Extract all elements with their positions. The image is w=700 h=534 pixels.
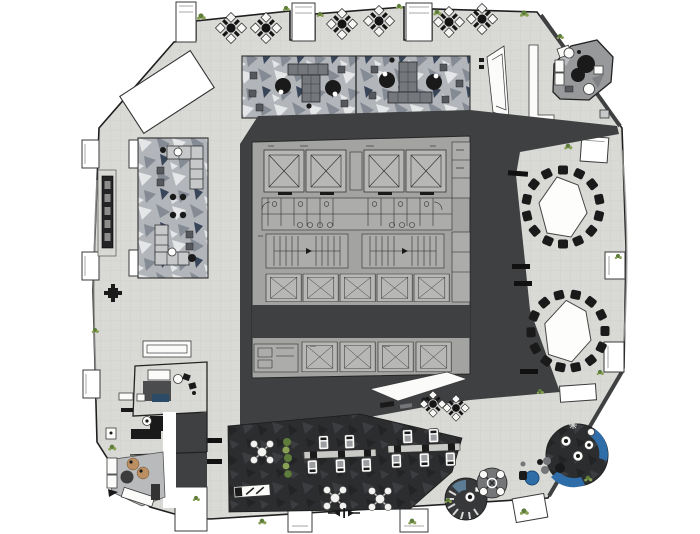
service-box — [600, 110, 609, 118]
elevator-bank-middle — [266, 274, 449, 302]
window-notch — [605, 252, 625, 279]
lounge-southwest — [107, 452, 165, 507]
bench-icon — [234, 484, 271, 497]
wc-block — [262, 198, 452, 230]
lounge-north-camo — [242, 56, 470, 118]
elevator-bank-upper — [264, 150, 446, 195]
window-notch — [512, 493, 548, 522]
window-notch — [82, 140, 99, 168]
window-notch — [559, 384, 596, 402]
window-notch — [406, 3, 432, 41]
sparkle-plant-icon — [569, 421, 577, 429]
window-notch — [83, 370, 100, 398]
window-notch — [604, 342, 624, 372]
lounge-west-camo — [129, 138, 208, 278]
window-notch — [292, 3, 315, 41]
window-notch — [176, 2, 196, 42]
floor-plan-image — [0, 0, 700, 534]
floor-plan-page — [0, 0, 700, 534]
round-table-south — [477, 468, 507, 498]
elevator-lobby-band — [252, 305, 470, 338]
calligraphy-sign-west — [98, 170, 116, 256]
planter-bench-west — [143, 341, 191, 357]
elevator-bank-lower — [254, 342, 451, 372]
window-notch — [288, 508, 312, 532]
wall-slab-southwest — [175, 413, 207, 487]
window-notch — [82, 252, 99, 280]
